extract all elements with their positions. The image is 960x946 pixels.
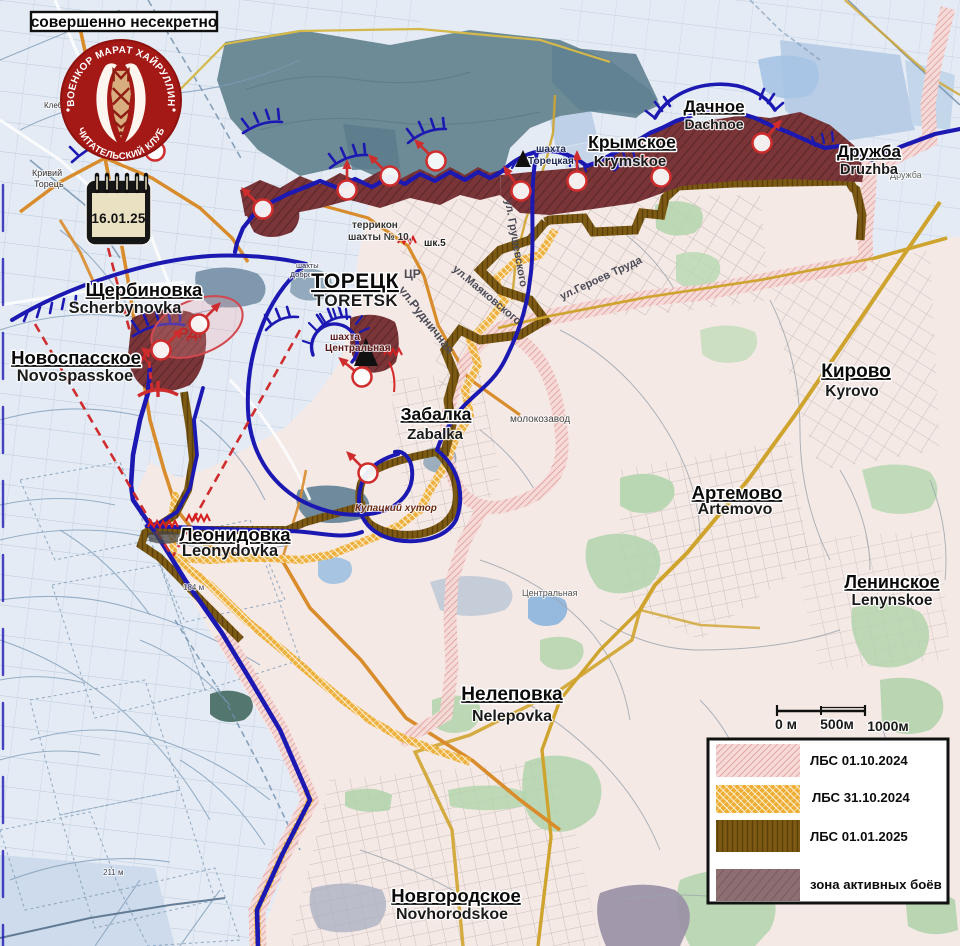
- svg-text:Купацкий хутор: Купацкий хутор: [355, 503, 437, 514]
- svg-text:Leonydovka: Leonydovka: [182, 542, 279, 560]
- svg-text:Artemovo: Artemovo: [698, 501, 773, 518]
- svg-text:Novhorodskoe: Novhorodskoe: [396, 906, 508, 923]
- svg-text:шахта: шахта: [330, 332, 360, 343]
- svg-text:16.01.25: 16.01.25: [91, 211, 145, 226]
- svg-text:Нелеповка: Нелеповка: [461, 684, 563, 705]
- svg-text:Новгородское: Новгородское: [391, 885, 521, 906]
- svg-text:1000м: 1000м: [867, 718, 909, 734]
- svg-text:500м: 500м: [820, 716, 854, 732]
- svg-text:Новоспасское: Новоспасское: [11, 347, 141, 368]
- svg-text:Торецкая: Торецкая: [528, 156, 574, 167]
- svg-text:Ленинское: Ленинское: [844, 572, 939, 592]
- svg-text:Scherbynovka: Scherbynovka: [69, 299, 183, 317]
- svg-text:TORETSK: TORETSK: [314, 291, 399, 310]
- svg-text:ЛБС 01.01.2025: ЛБС 01.01.2025: [810, 829, 908, 844]
- svg-text:Zabalka: Zabalka: [407, 426, 464, 443]
- svg-text:шк.5: шк.5: [424, 238, 446, 249]
- svg-text:совершенно несекретно: совершенно несекретно: [31, 14, 218, 31]
- svg-text:Nelepovka: Nelepovka: [472, 708, 552, 725]
- svg-text:Dachnoe: Dachnoe: [684, 116, 743, 132]
- svg-text:Забалка: Забалка: [401, 404, 472, 424]
- svg-text:Кирово: Кирово: [821, 361, 891, 382]
- svg-text:зона активных боёв: зона активных боёв: [810, 877, 942, 892]
- svg-text:184 м: 184 м: [183, 583, 204, 592]
- svg-text:0 м: 0 м: [775, 716, 797, 732]
- svg-text:шахты № 10,: шахты № 10,: [348, 232, 412, 243]
- svg-text:Крымское: Крымское: [588, 132, 676, 152]
- svg-text:Торець: Торець: [34, 179, 64, 189]
- svg-text:Дачное: Дачное: [683, 97, 744, 116]
- svg-text:ЦР: ЦР: [404, 267, 421, 281]
- svg-text:Дружба: Дружба: [837, 142, 901, 161]
- svg-text:Щербиновка: Щербиновка: [86, 279, 203, 300]
- svg-text:Центральная: Центральная: [522, 588, 578, 598]
- svg-text:ЛБС 01.10.2024: ЛБС 01.10.2024: [810, 753, 908, 768]
- svg-text:Druzhba: Druzhba: [840, 162, 899, 178]
- svg-text:Центральная: Центральная: [325, 343, 391, 354]
- svg-text:Krymskoe: Krymskoe: [594, 153, 667, 170]
- svg-text:ЛБС 31.10.2024: ЛБС 31.10.2024: [812, 790, 910, 805]
- svg-text:шахты: шахты: [296, 261, 319, 270]
- svg-text:Kyrovo: Kyrovo: [825, 383, 878, 400]
- svg-text:Артемово: Артемово: [692, 482, 783, 503]
- svg-text:ТОРЕЦК: ТОРЕЦК: [311, 270, 399, 293]
- svg-text:террикон: террикон: [352, 220, 398, 231]
- svg-text:Lenynskoe: Lenynskoe: [852, 592, 933, 609]
- svg-text:211 м: 211 м: [103, 868, 123, 877]
- svg-text:Novospasskoe: Novospasskoe: [17, 367, 133, 385]
- svg-text:Кривий: Кривий: [32, 168, 62, 178]
- svg-text:молокозавод: молокозавод: [510, 414, 570, 425]
- svg-text:шахта: шахта: [536, 144, 566, 155]
